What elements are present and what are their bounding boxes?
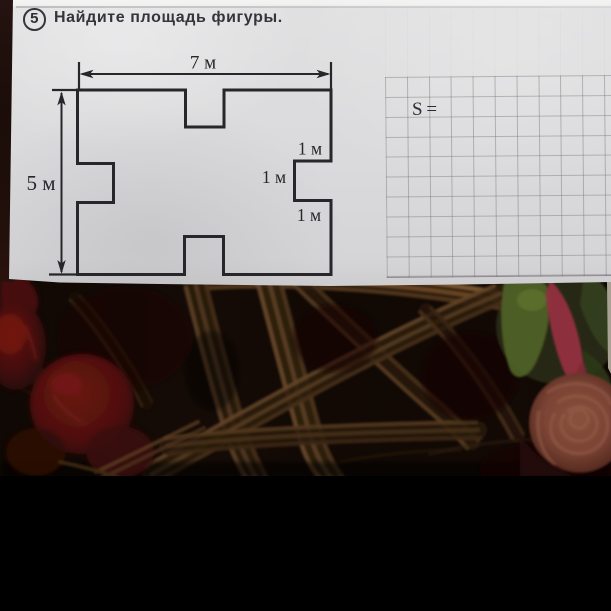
svg-text:1 м: 1 м	[298, 139, 322, 159]
svg-text:1 м: 1 м	[297, 205, 321, 225]
svg-text:5 м: 5 м	[26, 171, 55, 195]
svg-text:7 м: 7 м	[190, 53, 216, 74]
svg-text:1 м: 1 м	[262, 167, 286, 187]
